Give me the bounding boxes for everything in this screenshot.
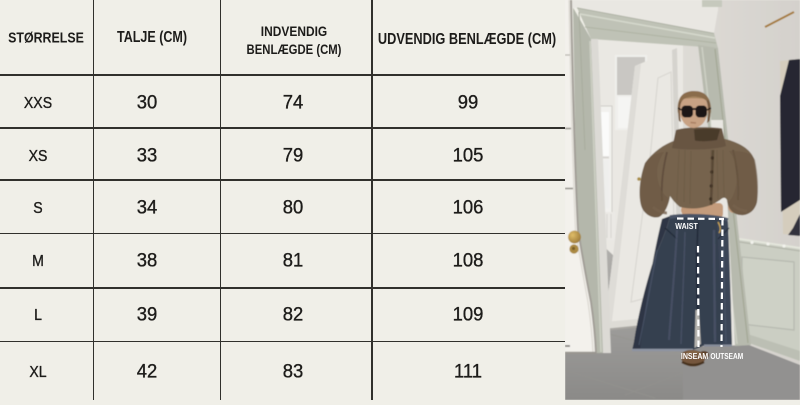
svg-text:INSEAM: INSEAM — [681, 351, 708, 361]
svg-text:WAIST: WAIST — [675, 221, 698, 231]
svg-text:OUTSEAM: OUTSEAM — [710, 351, 743, 361]
